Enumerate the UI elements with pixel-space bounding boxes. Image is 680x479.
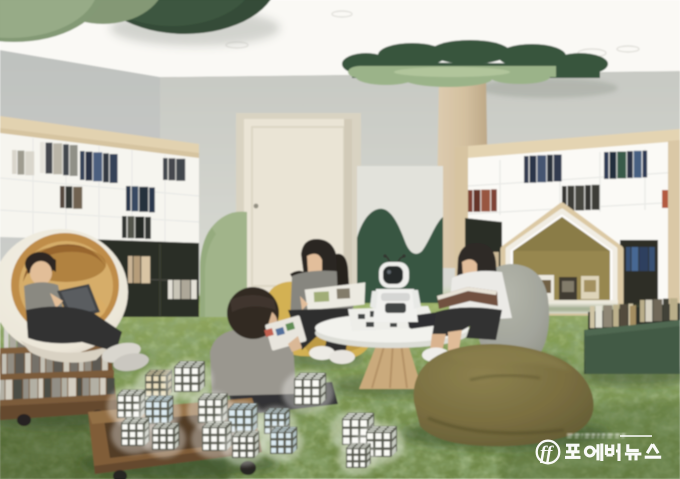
svg-text:ff: ff	[540, 443, 554, 464]
